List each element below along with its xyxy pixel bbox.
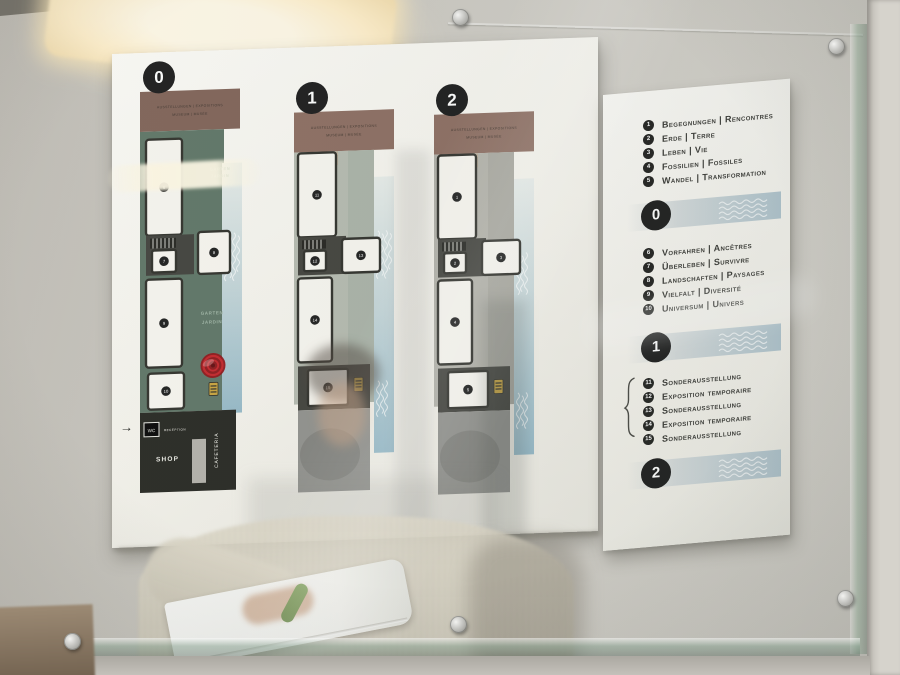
glass-standoff-screw (452, 9, 469, 26)
glass-edge-bottom (70, 638, 860, 656)
wall (867, 0, 900, 675)
glass-standoff-screw (837, 590, 854, 607)
glass-standoff-screw (64, 633, 81, 650)
glass-standoff-screw (828, 38, 845, 55)
glass-edge-right (850, 24, 867, 654)
photo-vignette (0, 0, 900, 675)
wall (70, 656, 870, 675)
foreground-object (0, 604, 95, 675)
glass-standoff-screw (450, 616, 467, 633)
photo-of-museum-floorplan-sign: → AUSSTELLUNGEN | EXPOSITIONS MUSEUM | M… (0, 0, 900, 675)
